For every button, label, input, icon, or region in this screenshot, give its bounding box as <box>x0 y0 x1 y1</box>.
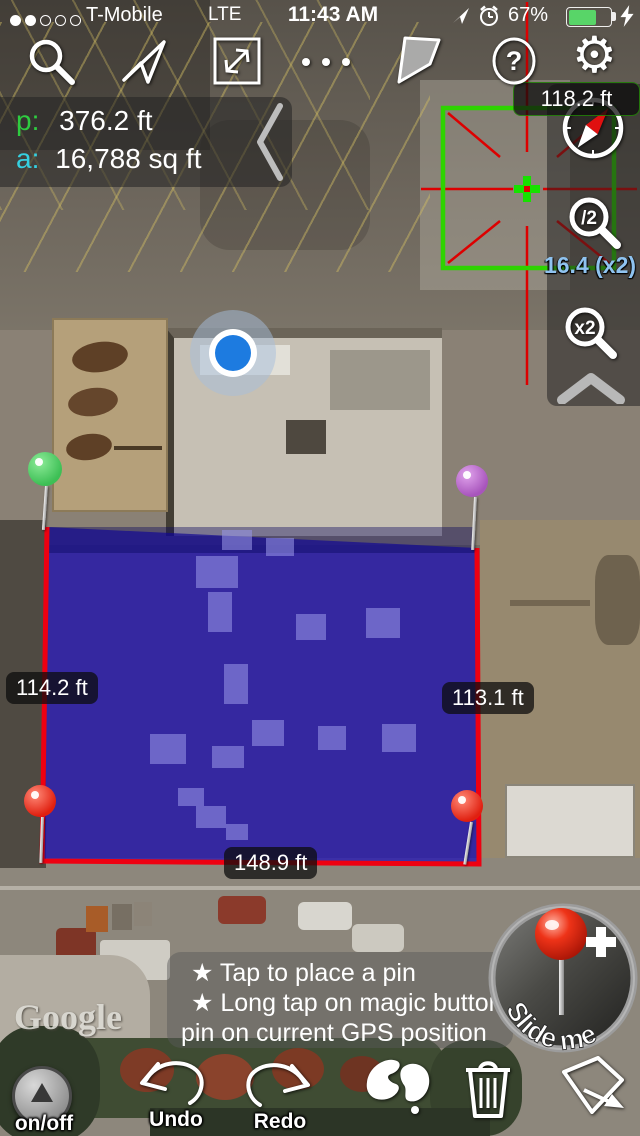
hint-line: pin on current GPS position <box>167 1018 513 1048</box>
undo-label: Undo <box>136 1108 216 1132</box>
top-toolbar: ? ⚙ <box>0 32 640 88</box>
map-feature <box>86 906 108 932</box>
hint-line: ★ Long tap on magic button: <box>167 988 513 1018</box>
signal-strength-icon <box>10 9 85 32</box>
pin-green[interactable] <box>28 452 62 486</box>
help-icon[interactable]: ? <box>490 34 538 88</box>
hint-box: ★ Tap to place a pin ★ Long tap on magic… <box>167 952 513 1048</box>
hint-line: ★ Tap to place a pin <box>167 958 513 988</box>
alarm-clock-icon <box>477 4 501 28</box>
map-feature <box>134 902 152 926</box>
onoff-label: on/off <box>2 1112 86 1136</box>
map-vehicle <box>298 902 352 930</box>
svg-text:/2: /2 <box>581 208 597 229</box>
redo-label: Redo <box>240 1110 320 1134</box>
google-watermark: Google <box>14 996 122 1038</box>
map-feature <box>510 600 590 606</box>
network-label: LTE <box>208 4 241 26</box>
area-label: a: <box>16 143 39 174</box>
app-screen: 118.2 ft /2 16.4 (x2) x2 T-Mobile LTE 11… <box>0 0 640 1136</box>
settings-gear-icon[interactable]: ⚙ <box>572 26 617 84</box>
edge-length-left: 114.2 ft <box>6 672 98 704</box>
search-icon[interactable] <box>26 36 78 88</box>
charging-bolt-icon <box>619 4 635 28</box>
map-feature <box>330 350 430 410</box>
scale-indicator: 16.4 (x2) <box>540 252 640 279</box>
svg-text:?: ? <box>506 46 523 76</box>
edge-length-right: 113.1 ft <box>442 682 534 714</box>
pin-red-right[interactable] <box>451 790 483 822</box>
location-services-icon <box>452 7 470 25</box>
area-value: 16,788 sq ft <box>55 143 201 174</box>
map-feature <box>595 555 640 645</box>
carrier-label: T-Mobile <box>86 4 163 27</box>
measurement-readout: p: 376.2 ft a: 16,788 sq ft <box>0 97 292 187</box>
collapse-readout-chevron-icon[interactable] <box>252 100 288 184</box>
battery-tip <box>612 12 616 21</box>
resize-icon[interactable] <box>212 36 262 86</box>
collapse-panel-chevron-icon[interactable] <box>556 370 626 404</box>
map-feature <box>112 904 132 930</box>
zoom-out-icon[interactable]: /2 <box>566 194 624 252</box>
map-building <box>52 318 168 512</box>
svg-text:x2: x2 <box>574 318 595 339</box>
triangle-up-icon <box>31 1083 53 1102</box>
battery-percent-label: 67% <box>508 4 548 27</box>
map-feature <box>286 420 326 454</box>
map-vehicle <box>218 896 266 924</box>
perimeter-label: p: <box>16 105 39 136</box>
bottom-toolbar: on/off Undo Redo <box>0 1050 640 1136</box>
map-feature <box>0 886 640 890</box>
pin-purple[interactable] <box>456 465 488 497</box>
gps-arrow-icon[interactable] <box>118 36 170 88</box>
edge-length-bottom: 148.9 ft <box>224 847 317 879</box>
magic-slide-button[interactable]: Slide me <box>486 901 640 1061</box>
pin-red-left[interactable] <box>24 785 56 817</box>
map-vehicle <box>352 924 404 952</box>
trash-icon[interactable] <box>460 1056 516 1122</box>
current-location-dot-core <box>215 335 251 371</box>
redo-icon[interactable] <box>242 1058 312 1114</box>
polygon-tool-icon[interactable] <box>392 32 448 88</box>
world-map-icon[interactable] <box>355 1052 435 1122</box>
status-bar: T-Mobile LTE 11:43 AM 67% <box>0 0 640 32</box>
export-polygon-icon[interactable] <box>554 1054 634 1120</box>
zoom-in-icon[interactable]: x2 <box>562 304 620 362</box>
clock-label: 11:43 AM <box>268 3 398 27</box>
perimeter-value: 376.2 ft <box>59 105 152 136</box>
more-options-icon[interactable] <box>298 54 354 70</box>
battery-icon <box>566 7 612 27</box>
map-trailer <box>505 784 635 858</box>
undo-icon[interactable] <box>138 1056 208 1112</box>
